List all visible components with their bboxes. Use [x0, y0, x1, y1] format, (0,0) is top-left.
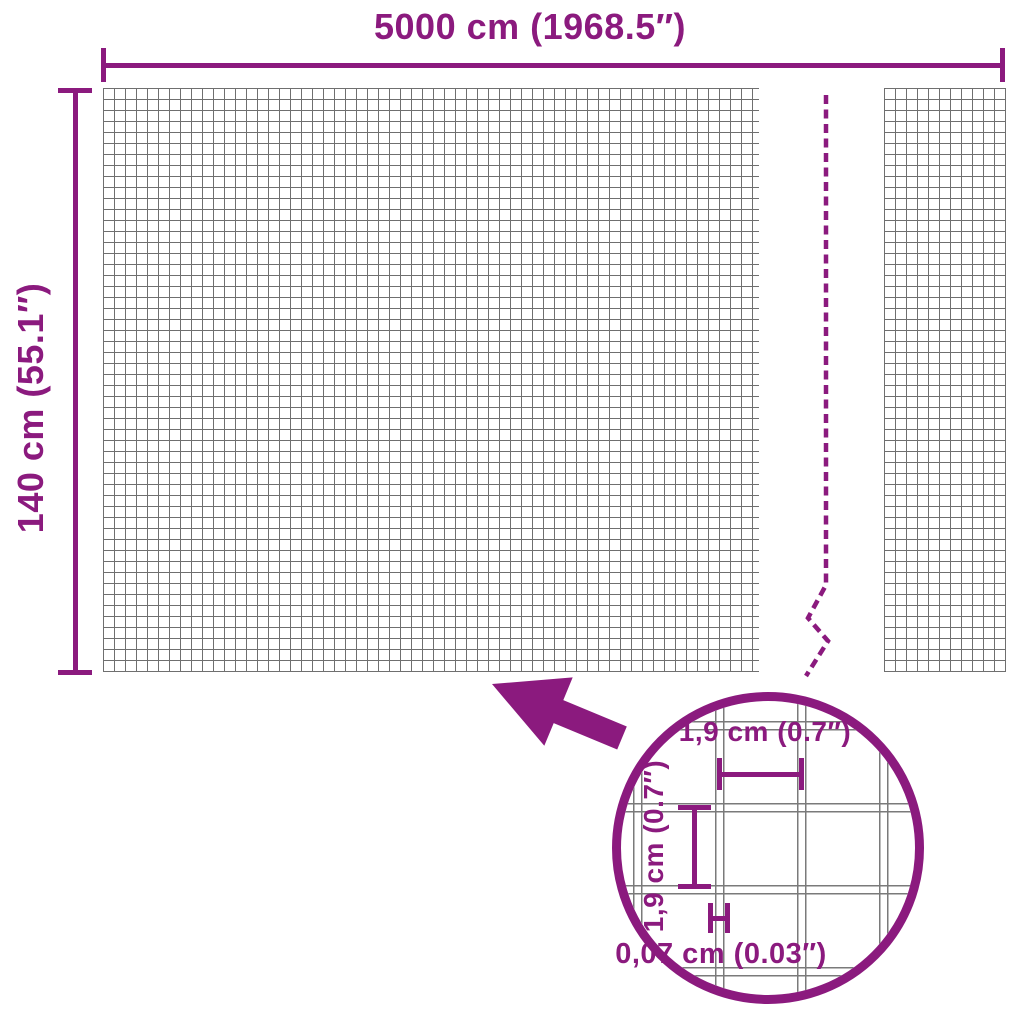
- cell-width-cap-right: [799, 758, 804, 790]
- cell-width-dimension-line: [717, 772, 804, 777]
- product-dimension-diagram: 5000 cm (1968.5″) 140 cm (55.1″) 1,9 cm …: [0, 0, 1024, 1024]
- height-dimension-cap-bottom: [58, 670, 92, 675]
- cell-height-label: 1,9 cm (0.7″): [638, 760, 670, 932]
- width-dimension-label: 5000 cm (1968.5″): [330, 6, 730, 48]
- mesh-fence-continuation: [884, 88, 1006, 672]
- break-line-icon: [806, 95, 828, 676]
- cell-height-dimension-line: [692, 805, 697, 889]
- wire-thickness-marker-cross: [708, 916, 730, 921]
- cell-height-cap-top: [678, 805, 711, 810]
- height-dimension-line: [73, 90, 78, 673]
- height-dimension-cap-top: [58, 88, 92, 93]
- mesh-fence-main: [103, 88, 759, 672]
- wire-thickness-label: 0,07 cm (0.03″): [596, 938, 846, 971]
- cell-width-label: 1,9 cm (0.7″): [640, 716, 890, 748]
- zoom-arrow-icon: [492, 677, 627, 749]
- cell-width-cap-left: [717, 758, 722, 790]
- width-dimension-line: [103, 63, 1004, 68]
- cell-height-cap-bottom: [678, 884, 711, 889]
- width-dimension-cap-right: [1000, 48, 1005, 82]
- height-dimension-label: 140 cm (55.1″): [10, 283, 52, 533]
- width-dimension-cap-left: [101, 48, 106, 82]
